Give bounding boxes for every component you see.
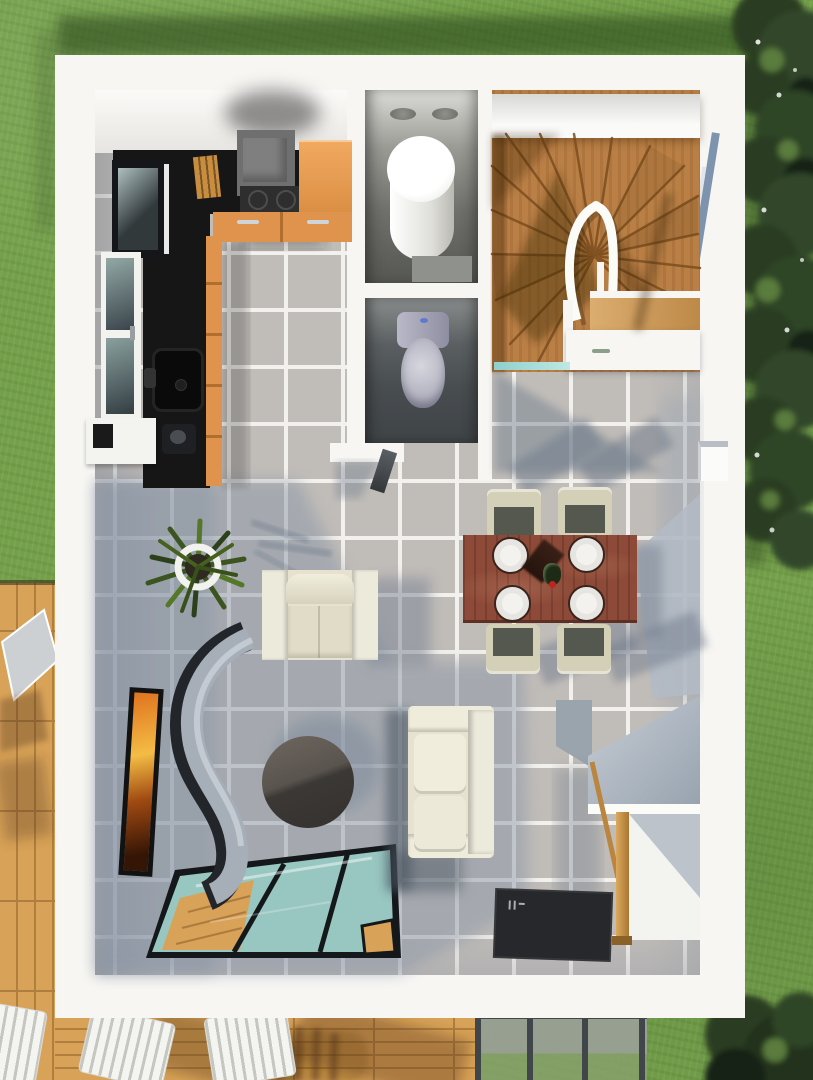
sofa-cushion <box>414 734 466 794</box>
understair-cupboard <box>566 330 700 370</box>
chair-seat <box>494 507 534 535</box>
hood-top-face <box>243 138 287 182</box>
sofa <box>408 706 494 858</box>
stair-landing-rail <box>590 291 700 298</box>
armchair <box>262 570 378 660</box>
dinner-plate <box>492 537 529 574</box>
coffee-machine <box>162 424 196 454</box>
kitchen-drawer-row <box>213 212 352 242</box>
veranda-post <box>527 1019 533 1080</box>
stair-glass-transom <box>494 362 570 370</box>
cabinet-edge <box>164 164 169 254</box>
sink-drain <box>175 379 187 391</box>
window-pane <box>106 258 134 330</box>
water-heater-top <box>387 136 455 202</box>
dining-chair <box>486 624 540 674</box>
right-wall-niche <box>698 441 728 481</box>
upper-landing-ceiling <box>492 94 700 138</box>
drawer-handle <box>307 220 329 224</box>
doormat-label <box>519 903 525 905</box>
drawer-handle <box>237 220 259 224</box>
armchair-armrest <box>352 570 378 660</box>
floorplan-render <box>0 0 813 1080</box>
dinner-plate <box>568 536 605 573</box>
chair-seat <box>565 505 605 533</box>
dining-chair <box>487 489 541 539</box>
kitchen-sink <box>152 348 204 412</box>
armchair-armrest <box>262 570 288 660</box>
doormat-label <box>509 900 511 909</box>
wall-bath-wc-divider <box>347 283 492 298</box>
sofa-cushion <box>414 796 466 852</box>
ceiling-vent <box>432 108 458 120</box>
bath-mat <box>412 256 472 282</box>
glass-front-cabinet <box>112 160 170 258</box>
window-pane <box>106 338 134 414</box>
cabinet-front-strip <box>206 236 222 486</box>
kitchen-window <box>101 252 141 420</box>
wall-bath-stairs <box>478 55 492 480</box>
exterior-wall-box <box>86 418 156 464</box>
round-coffee-table <box>262 736 354 828</box>
toilet-flush-button <box>420 318 428 323</box>
burner <box>276 190 296 210</box>
doormat-label <box>514 901 516 910</box>
coffee-machine-top <box>170 430 186 444</box>
knife-block <box>193 155 221 199</box>
stair-rail-post <box>597 262 604 298</box>
burner <box>248 190 268 210</box>
toilet-bowl <box>401 338 445 408</box>
armchair-seat <box>288 606 352 658</box>
wall-box-opening <box>93 424 113 448</box>
orange-counter-block <box>299 140 352 212</box>
sofa-backrest <box>468 710 494 854</box>
veranda-post <box>582 1019 588 1080</box>
stair-landing-platform <box>590 296 700 330</box>
wall-kitchen-bath <box>347 55 365 460</box>
dinner-plate <box>568 585 605 622</box>
hedge-blossoms <box>755 40 805 533</box>
utility-bathroom <box>365 90 478 285</box>
cooktop <box>240 186 306 214</box>
dinner-plate <box>494 585 531 622</box>
cabinet-glass-pane <box>118 168 158 250</box>
doormat <box>493 888 613 962</box>
ceiling-vent <box>390 108 416 120</box>
wc-room <box>365 298 478 443</box>
dining-chair <box>557 624 611 674</box>
armchair-backrest <box>286 574 354 604</box>
veranda-glass-roof <box>475 1014 647 1080</box>
window-handle <box>130 326 135 340</box>
veranda-post <box>475 1019 481 1080</box>
wine-bottle-cap <box>549 581 556 588</box>
cupboard-handle <box>592 349 610 353</box>
chair-seat <box>493 628 533 656</box>
wall-wc-stub <box>330 443 404 462</box>
sink-faucet <box>144 368 156 388</box>
dining-chair <box>558 487 612 537</box>
chair-seat <box>564 628 604 656</box>
veranda-post <box>639 1019 645 1080</box>
